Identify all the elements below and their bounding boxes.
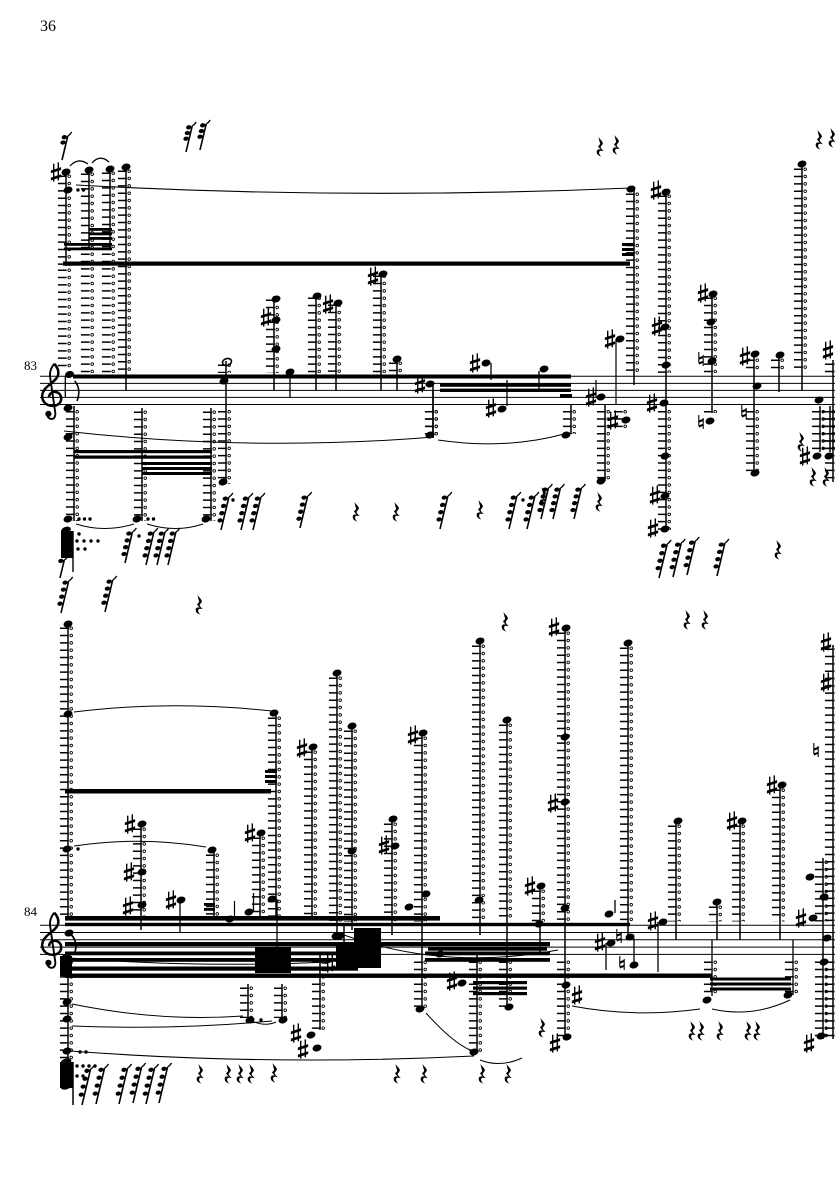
svg-text:84: 84 <box>24 904 38 919</box>
svg-text:36: 36 <box>40 18 56 35</box>
svg-text:83: 83 <box>24 358 37 373</box>
